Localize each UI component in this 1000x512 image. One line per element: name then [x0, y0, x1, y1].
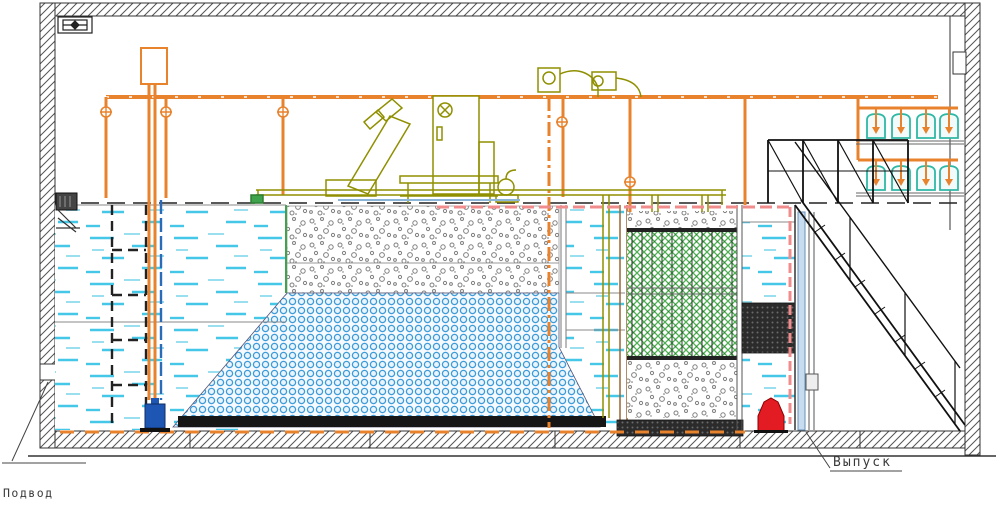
treatment-plant-section-drawing: Подвод сточных вод на очистку Выпуск: [0, 0, 1000, 512]
diffuser-drops-1: [876, 108, 949, 128]
biofilter-top-gravel: [627, 211, 737, 229]
outlet-riser-pipe: [798, 212, 805, 430]
feed-pump: [498, 179, 514, 195]
outlet-pump-base: [754, 430, 788, 433]
pipe-green-fitting: [251, 195, 263, 203]
ventilation-fan-unit: [58, 17, 92, 33]
top-wall: [40, 3, 980, 16]
inlet-label-line1: Подвод: [3, 487, 62, 499]
feed-pump-outlet: [506, 170, 516, 179]
diffuser-bells-2: [867, 166, 958, 190]
outlet-valve-box: [806, 374, 818, 390]
biofilter-tank: [617, 205, 743, 436]
media-tank-wall: [561, 205, 566, 348]
carbon-filter-block: [742, 303, 795, 353]
biofilter-bottom-grate: [627, 356, 737, 360]
biofilter-support-block: [617, 420, 743, 436]
biofilter-bottom-gravel: [627, 360, 737, 418]
stair-railing-posts: [850, 217, 955, 424]
right-niche-door: [953, 52, 966, 74]
aeration-plate: [178, 416, 606, 427]
cabinet-side-panel: [479, 142, 494, 194]
stair-stringer-inner: [801, 200, 965, 425]
drawing-canvas: [0, 0, 1000, 512]
diffuser-drops-2: [876, 160, 949, 180]
inlet-pump-base: [140, 428, 170, 432]
gravel-bed-top: [287, 206, 559, 293]
inlet-pump-body: [145, 404, 165, 428]
biofilter-top-grate: [627, 228, 737, 232]
diffuser-row-1: [856, 108, 964, 144]
left-wall: [40, 3, 55, 448]
air-receiver-tank: [141, 48, 167, 84]
inlet-penetration: [40, 364, 56, 380]
right-wall: [965, 3, 980, 455]
blower-1-motor: [543, 72, 555, 84]
outlet-label: Выпуск: [833, 455, 892, 470]
gate-drive-box: [56, 193, 77, 210]
blower-2-pipe: [616, 78, 641, 97]
inlet-label: Подвод сточных вод на очистку: [3, 463, 62, 512]
control-cabinet: [433, 96, 479, 194]
screw-screen-motor: [364, 110, 384, 129]
outlet-column: [809, 212, 814, 430]
diffuser-bells-1: [867, 114, 958, 138]
floor-slab: [55, 431, 965, 448]
biofilter-right-wall: [737, 205, 742, 430]
screw-screen-drive: [376, 99, 402, 121]
